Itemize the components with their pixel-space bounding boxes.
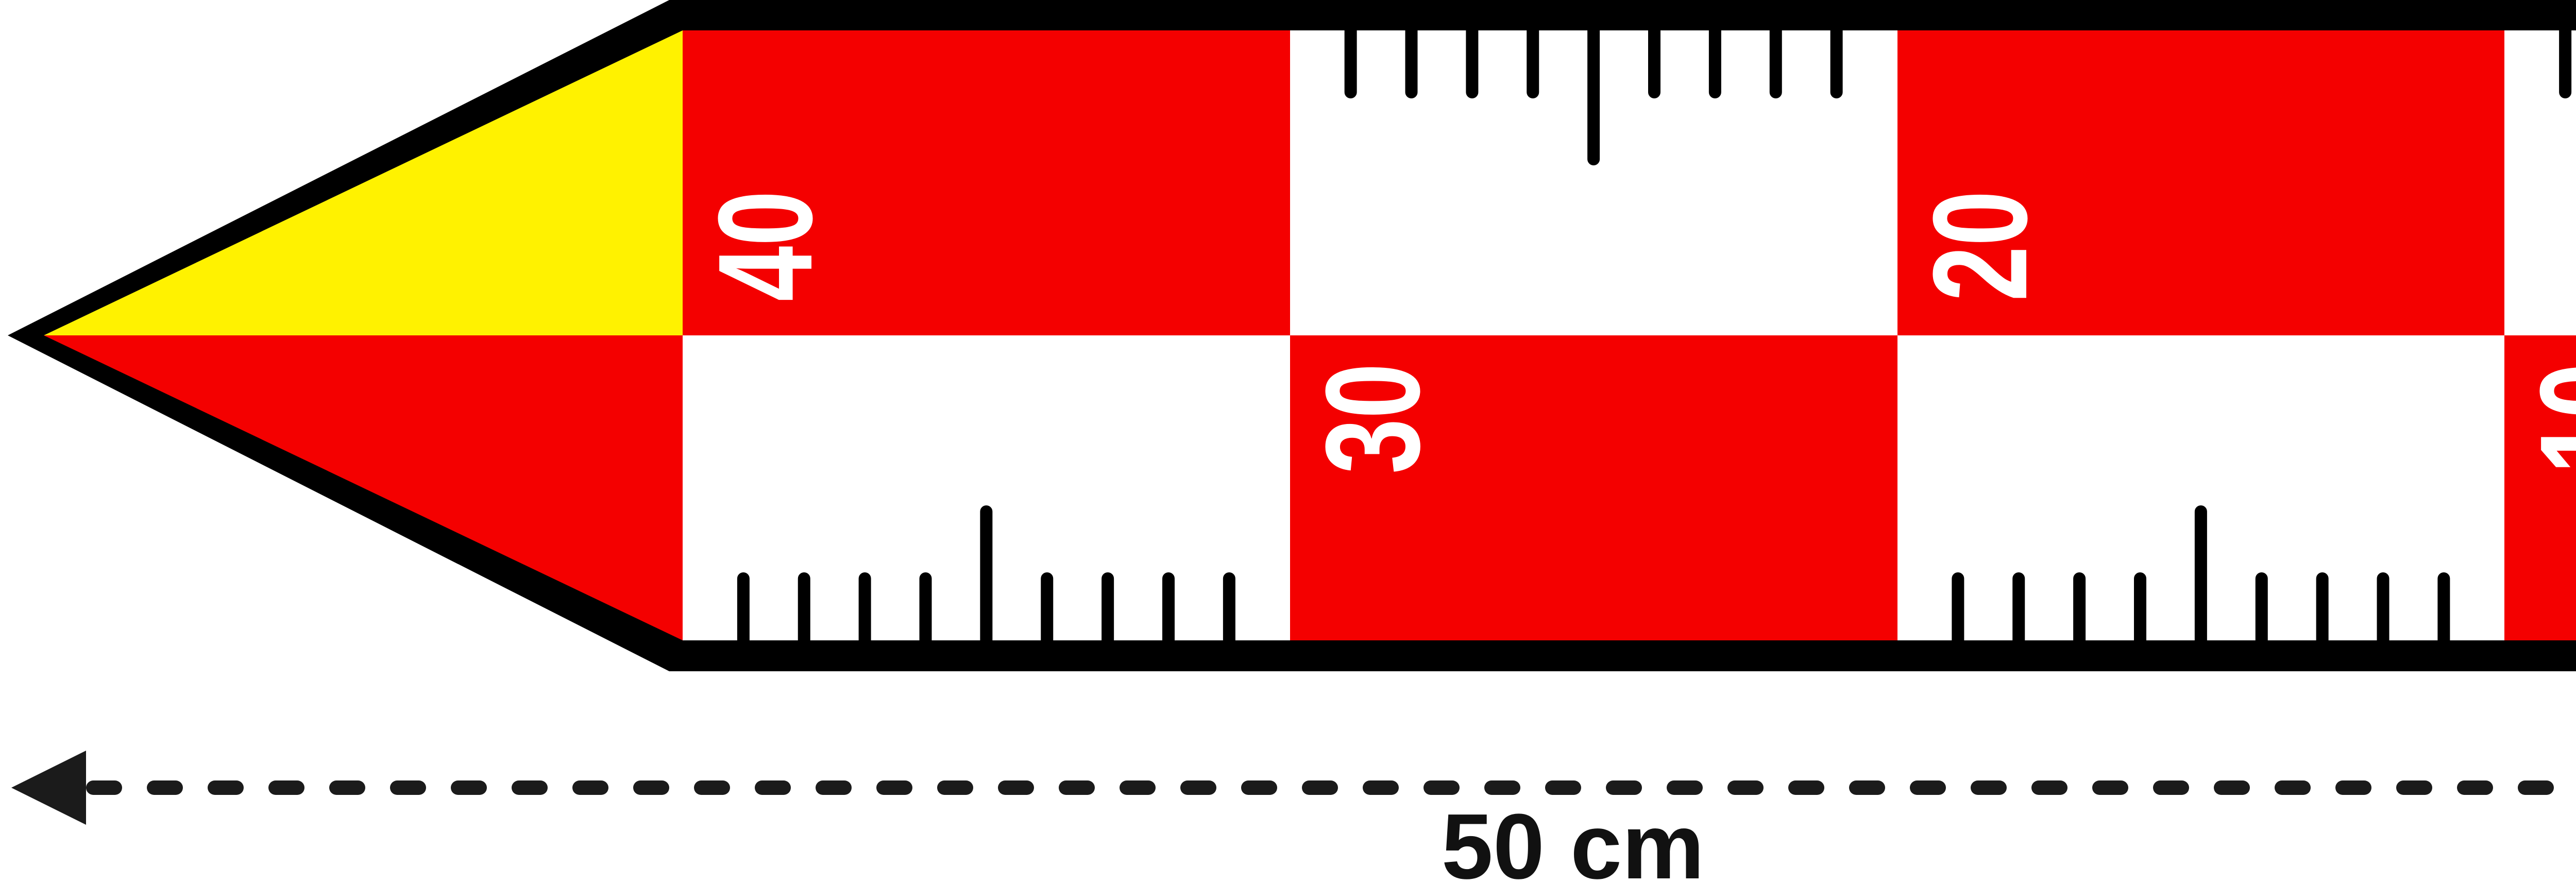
arrow-tip-yellow <box>44 30 683 335</box>
scale-bar: 40 30 20 10 cm <box>8 0 2576 671</box>
number-label-20: 20 <box>1906 191 2055 301</box>
dimension-arrowhead-left <box>11 751 86 825</box>
number-label-10: 10 <box>2513 363 2576 474</box>
number-label-30: 30 <box>1298 363 1448 474</box>
width-label: 50 cm <box>1442 795 1704 883</box>
scale-card: 40 30 20 10 cm <box>0 0 2576 883</box>
checkerboard <box>683 30 2576 640</box>
arrow-tip-red <box>44 335 683 640</box>
number-label-40: 40 <box>691 191 840 301</box>
width-dimension: 50 cm <box>11 751 2576 883</box>
